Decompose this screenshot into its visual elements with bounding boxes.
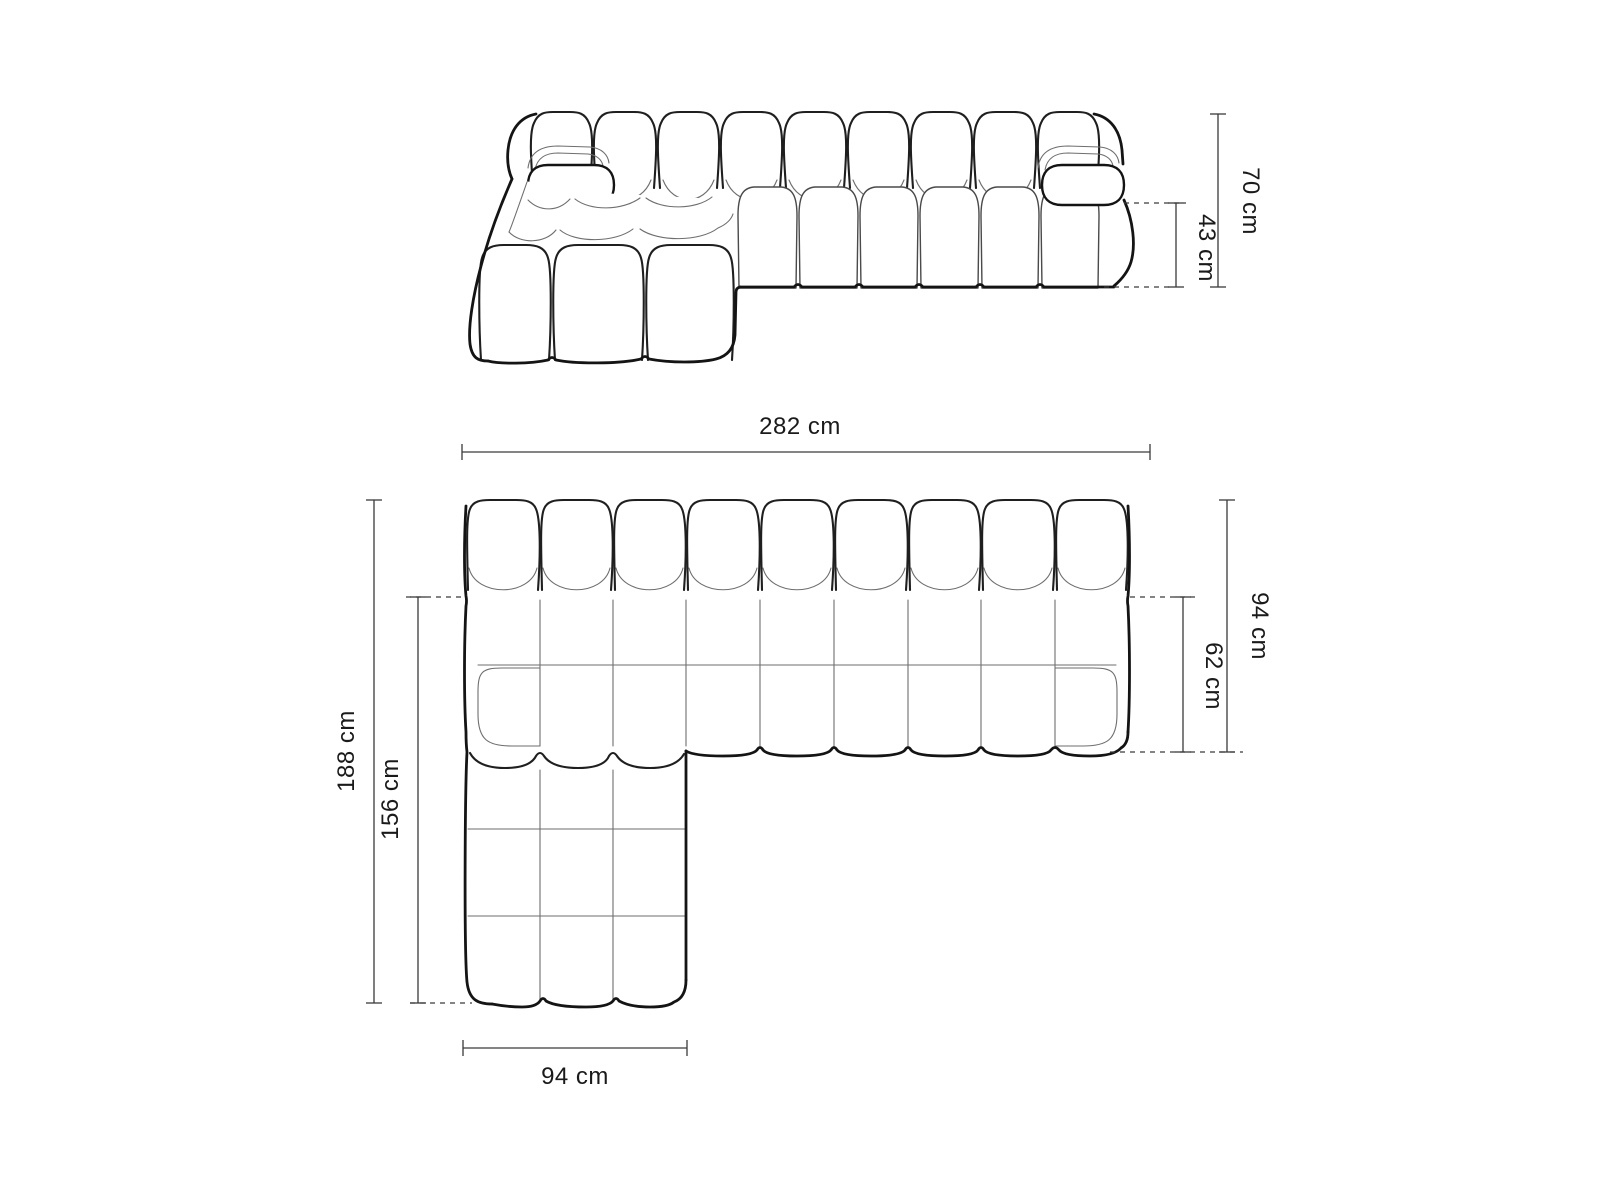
front-back-cushions [531,112,1099,188]
front-right-lower-silhouette [1114,200,1133,286]
dim-seat-height-label: 43 cm [1193,214,1220,282]
dim-total-depth-label: 94 cm [1246,592,1273,660]
dim-total-depth: 94 cm [1219,500,1273,752]
dim-chaise-width: 94 cm [463,1040,687,1090]
dim-total-length-label: 188 cm [333,710,360,792]
dim-total-width-label: 282 cm [759,413,841,440]
dim-total-length: 188 cm [333,500,382,1003]
dim-chaise-width-label: 94 cm [541,1063,609,1090]
dim-seat-depth-label: 62 cm [1200,642,1227,710]
sofa-dimension-diagram: 282 cm 94 cm 62 cm 188 cm [0,0,1600,1200]
front-seat-cushions [738,187,1099,288]
dim-chaise-length: 156 cm [377,597,472,1003]
front-elevation-view [469,112,1133,363]
dim-seat-height: 43 cm [1104,203,1220,287]
front-chaise [469,179,740,363]
top-plan-view [465,500,1130,1007]
plan-chaise-seams [468,770,685,1002]
dim-chaise-length-label: 156 cm [377,758,404,840]
dim-total-width: 282 cm [462,413,1150,460]
diagram-canvas: 282 cm 94 cm 62 cm 188 cm [0,0,1600,1200]
plan-seat-seams [478,600,1117,746]
dim-total-height-label: 70 cm [1237,167,1264,235]
plan-back-cushions [467,500,1128,590]
